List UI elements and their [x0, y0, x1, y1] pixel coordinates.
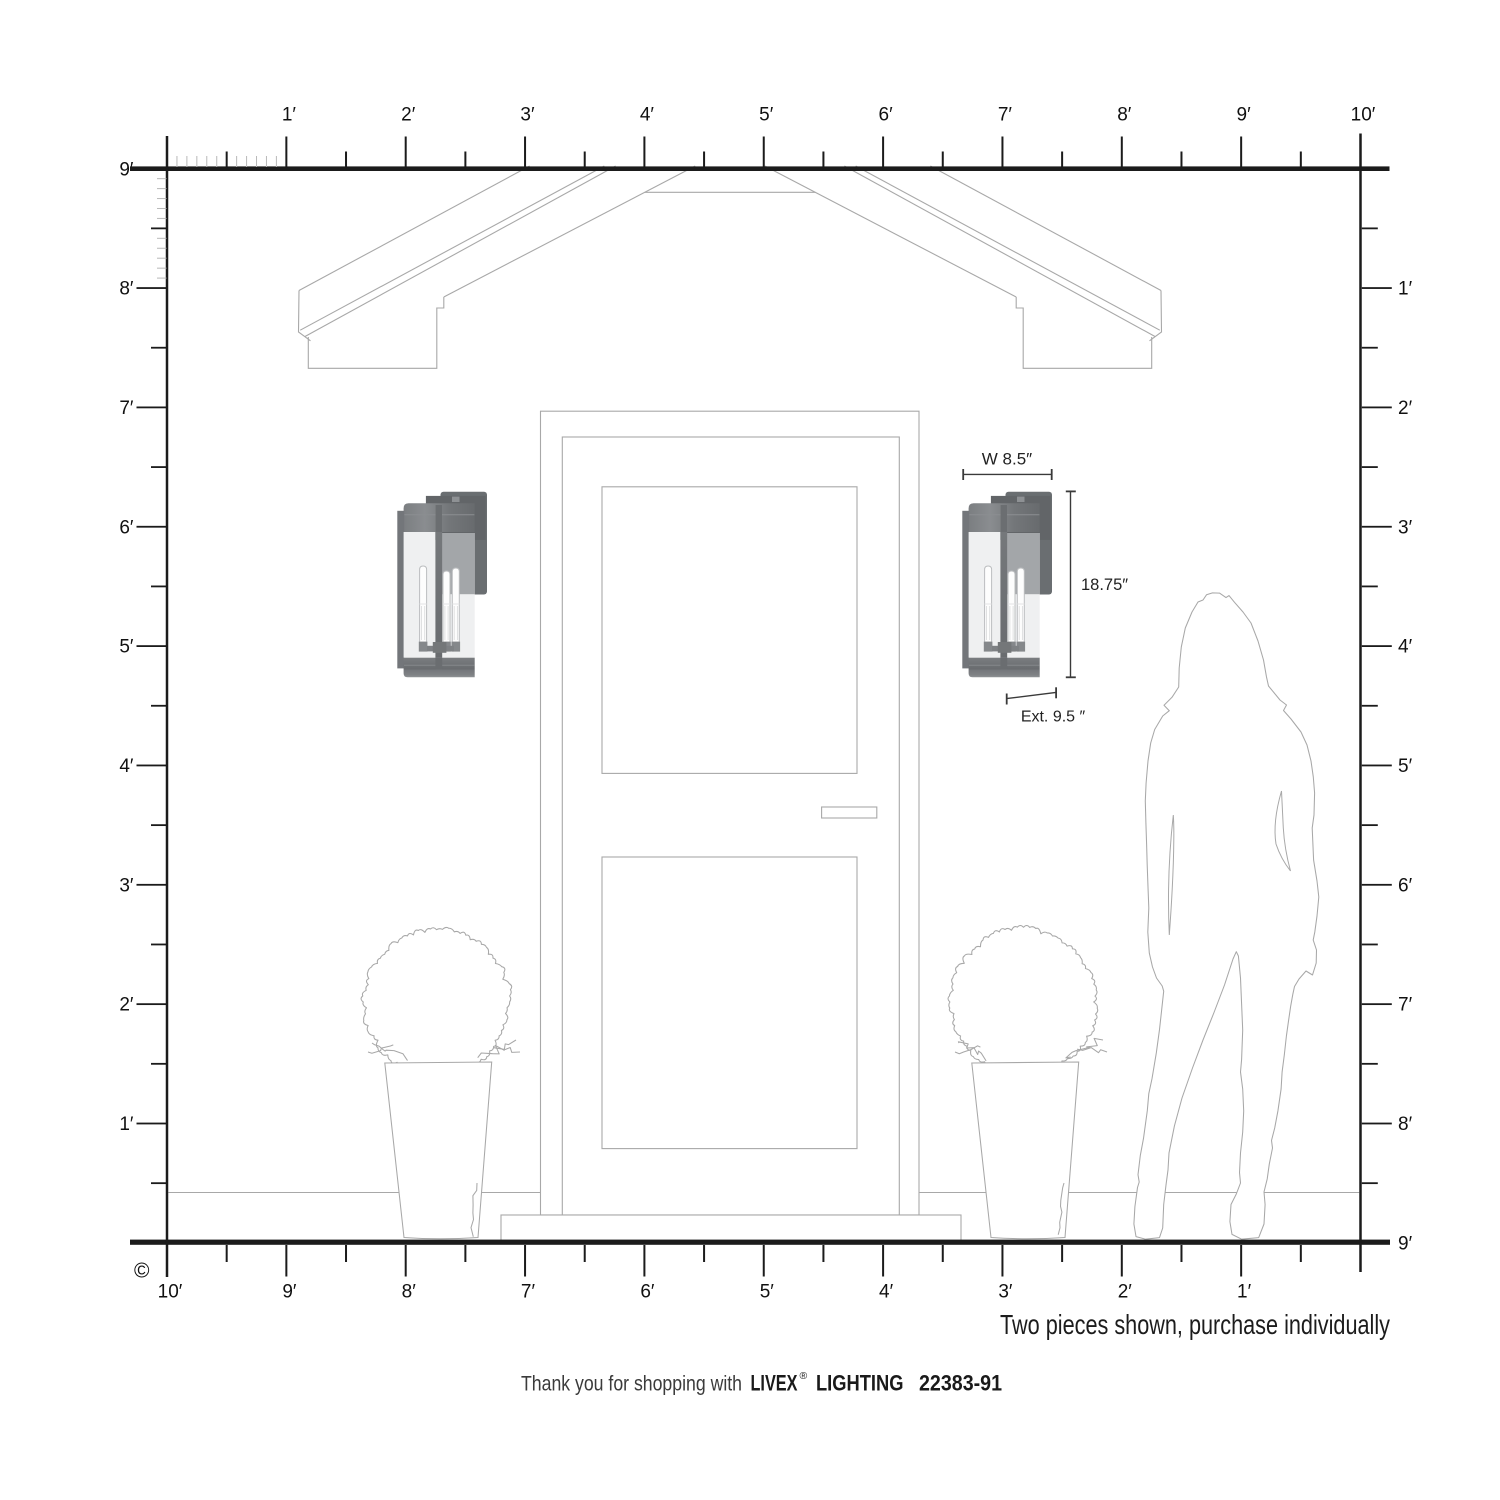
svg-text:LIGHTING: LIGHTING	[816, 1371, 904, 1396]
svg-text:8′: 8′	[402, 1282, 417, 1303]
svg-text:3′: 3′	[520, 105, 535, 126]
svg-text:5′: 5′	[1398, 756, 1413, 777]
svg-text:3′: 3′	[1398, 517, 1413, 538]
svg-text:5′: 5′	[759, 105, 774, 126]
svg-text:3′: 3′	[998, 1282, 1013, 1303]
svg-text:8′: 8′	[1398, 1114, 1413, 1135]
svg-text:6′: 6′	[879, 105, 894, 126]
svg-text:9′: 9′	[282, 1282, 297, 1303]
svg-text:Two pieces shown, purchase ind: Two pieces shown, purchase individually	[1000, 1309, 1390, 1340]
svg-text:2′: 2′	[401, 105, 416, 126]
svg-text:2′: 2′	[119, 995, 134, 1016]
svg-text:Ext. 9.5 ″: Ext. 9.5 ″	[1021, 709, 1086, 726]
svg-text:6′: 6′	[640, 1282, 655, 1303]
svg-text:10′: 10′	[158, 1282, 183, 1303]
svg-text:8′: 8′	[119, 279, 134, 300]
svg-text:1′: 1′	[1237, 1282, 1252, 1303]
svg-text:1′: 1′	[282, 105, 297, 126]
svg-text:4′: 4′	[879, 1282, 894, 1303]
svg-text:4′: 4′	[119, 756, 134, 777]
svg-text:9′: 9′	[1398, 1233, 1413, 1254]
svg-text:5′: 5′	[760, 1282, 775, 1303]
svg-text:©: ©	[134, 1260, 150, 1283]
svg-text:2′: 2′	[1118, 1282, 1133, 1303]
svg-text:9′: 9′	[119, 159, 134, 180]
svg-text:7′: 7′	[119, 398, 134, 419]
svg-text:Thank you for shopping with: Thank you for shopping with	[521, 1372, 742, 1396]
svg-text:4′: 4′	[1398, 637, 1413, 658]
svg-text:5′: 5′	[119, 637, 134, 658]
svg-text:7′: 7′	[521, 1282, 536, 1303]
svg-text:7′: 7′	[1398, 995, 1413, 1016]
svg-text:®: ®	[800, 1370, 808, 1382]
svg-text:6′: 6′	[1398, 875, 1413, 896]
svg-text:10′: 10′	[1351, 105, 1376, 126]
svg-text:1′: 1′	[1398, 279, 1413, 300]
svg-text:1′: 1′	[119, 1114, 134, 1135]
svg-text:W 8.5″: W 8.5″	[982, 450, 1032, 469]
svg-text:18.75″: 18.75″	[1081, 576, 1128, 594]
svg-text:22383-91: 22383-91	[919, 1371, 1002, 1396]
svg-text:3′: 3′	[119, 875, 134, 896]
svg-text:4′: 4′	[640, 105, 655, 126]
svg-text:2′: 2′	[1398, 398, 1413, 419]
svg-text:9′: 9′	[1237, 105, 1252, 126]
svg-text:7′: 7′	[998, 105, 1013, 126]
svg-text:8′: 8′	[1117, 105, 1132, 126]
svg-text:6′: 6′	[119, 517, 134, 538]
svg-text:LIVEX: LIVEX	[751, 1371, 798, 1396]
